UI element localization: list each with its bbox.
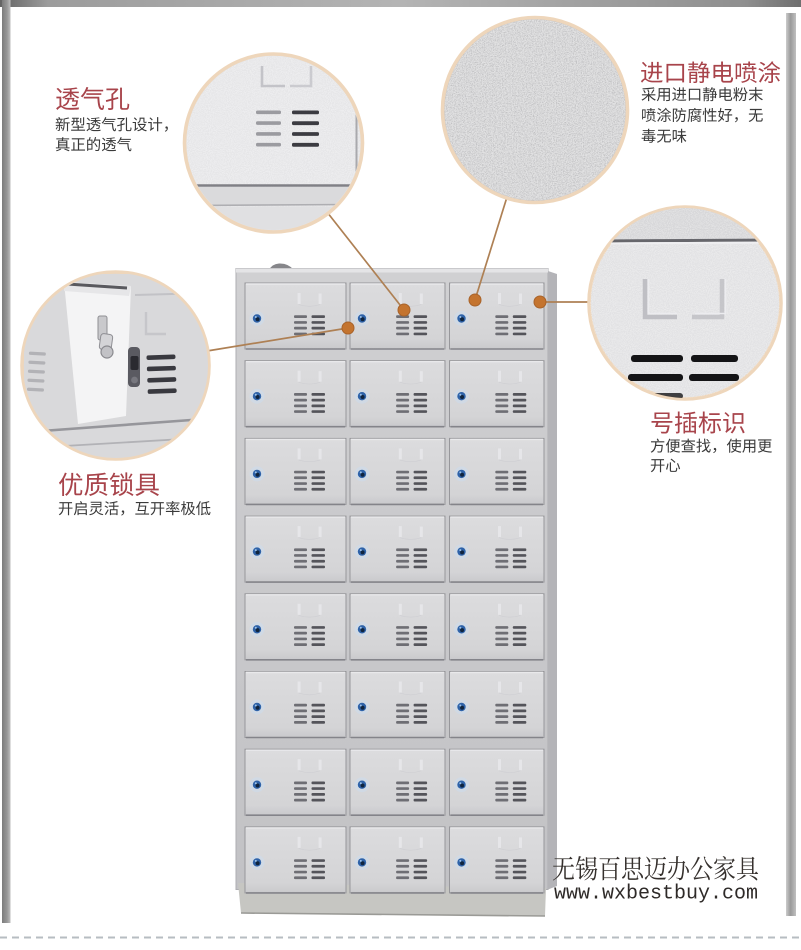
svg-text:www.wxbestbuy.com: www.wxbestbuy.com — [554, 883, 758, 906]
